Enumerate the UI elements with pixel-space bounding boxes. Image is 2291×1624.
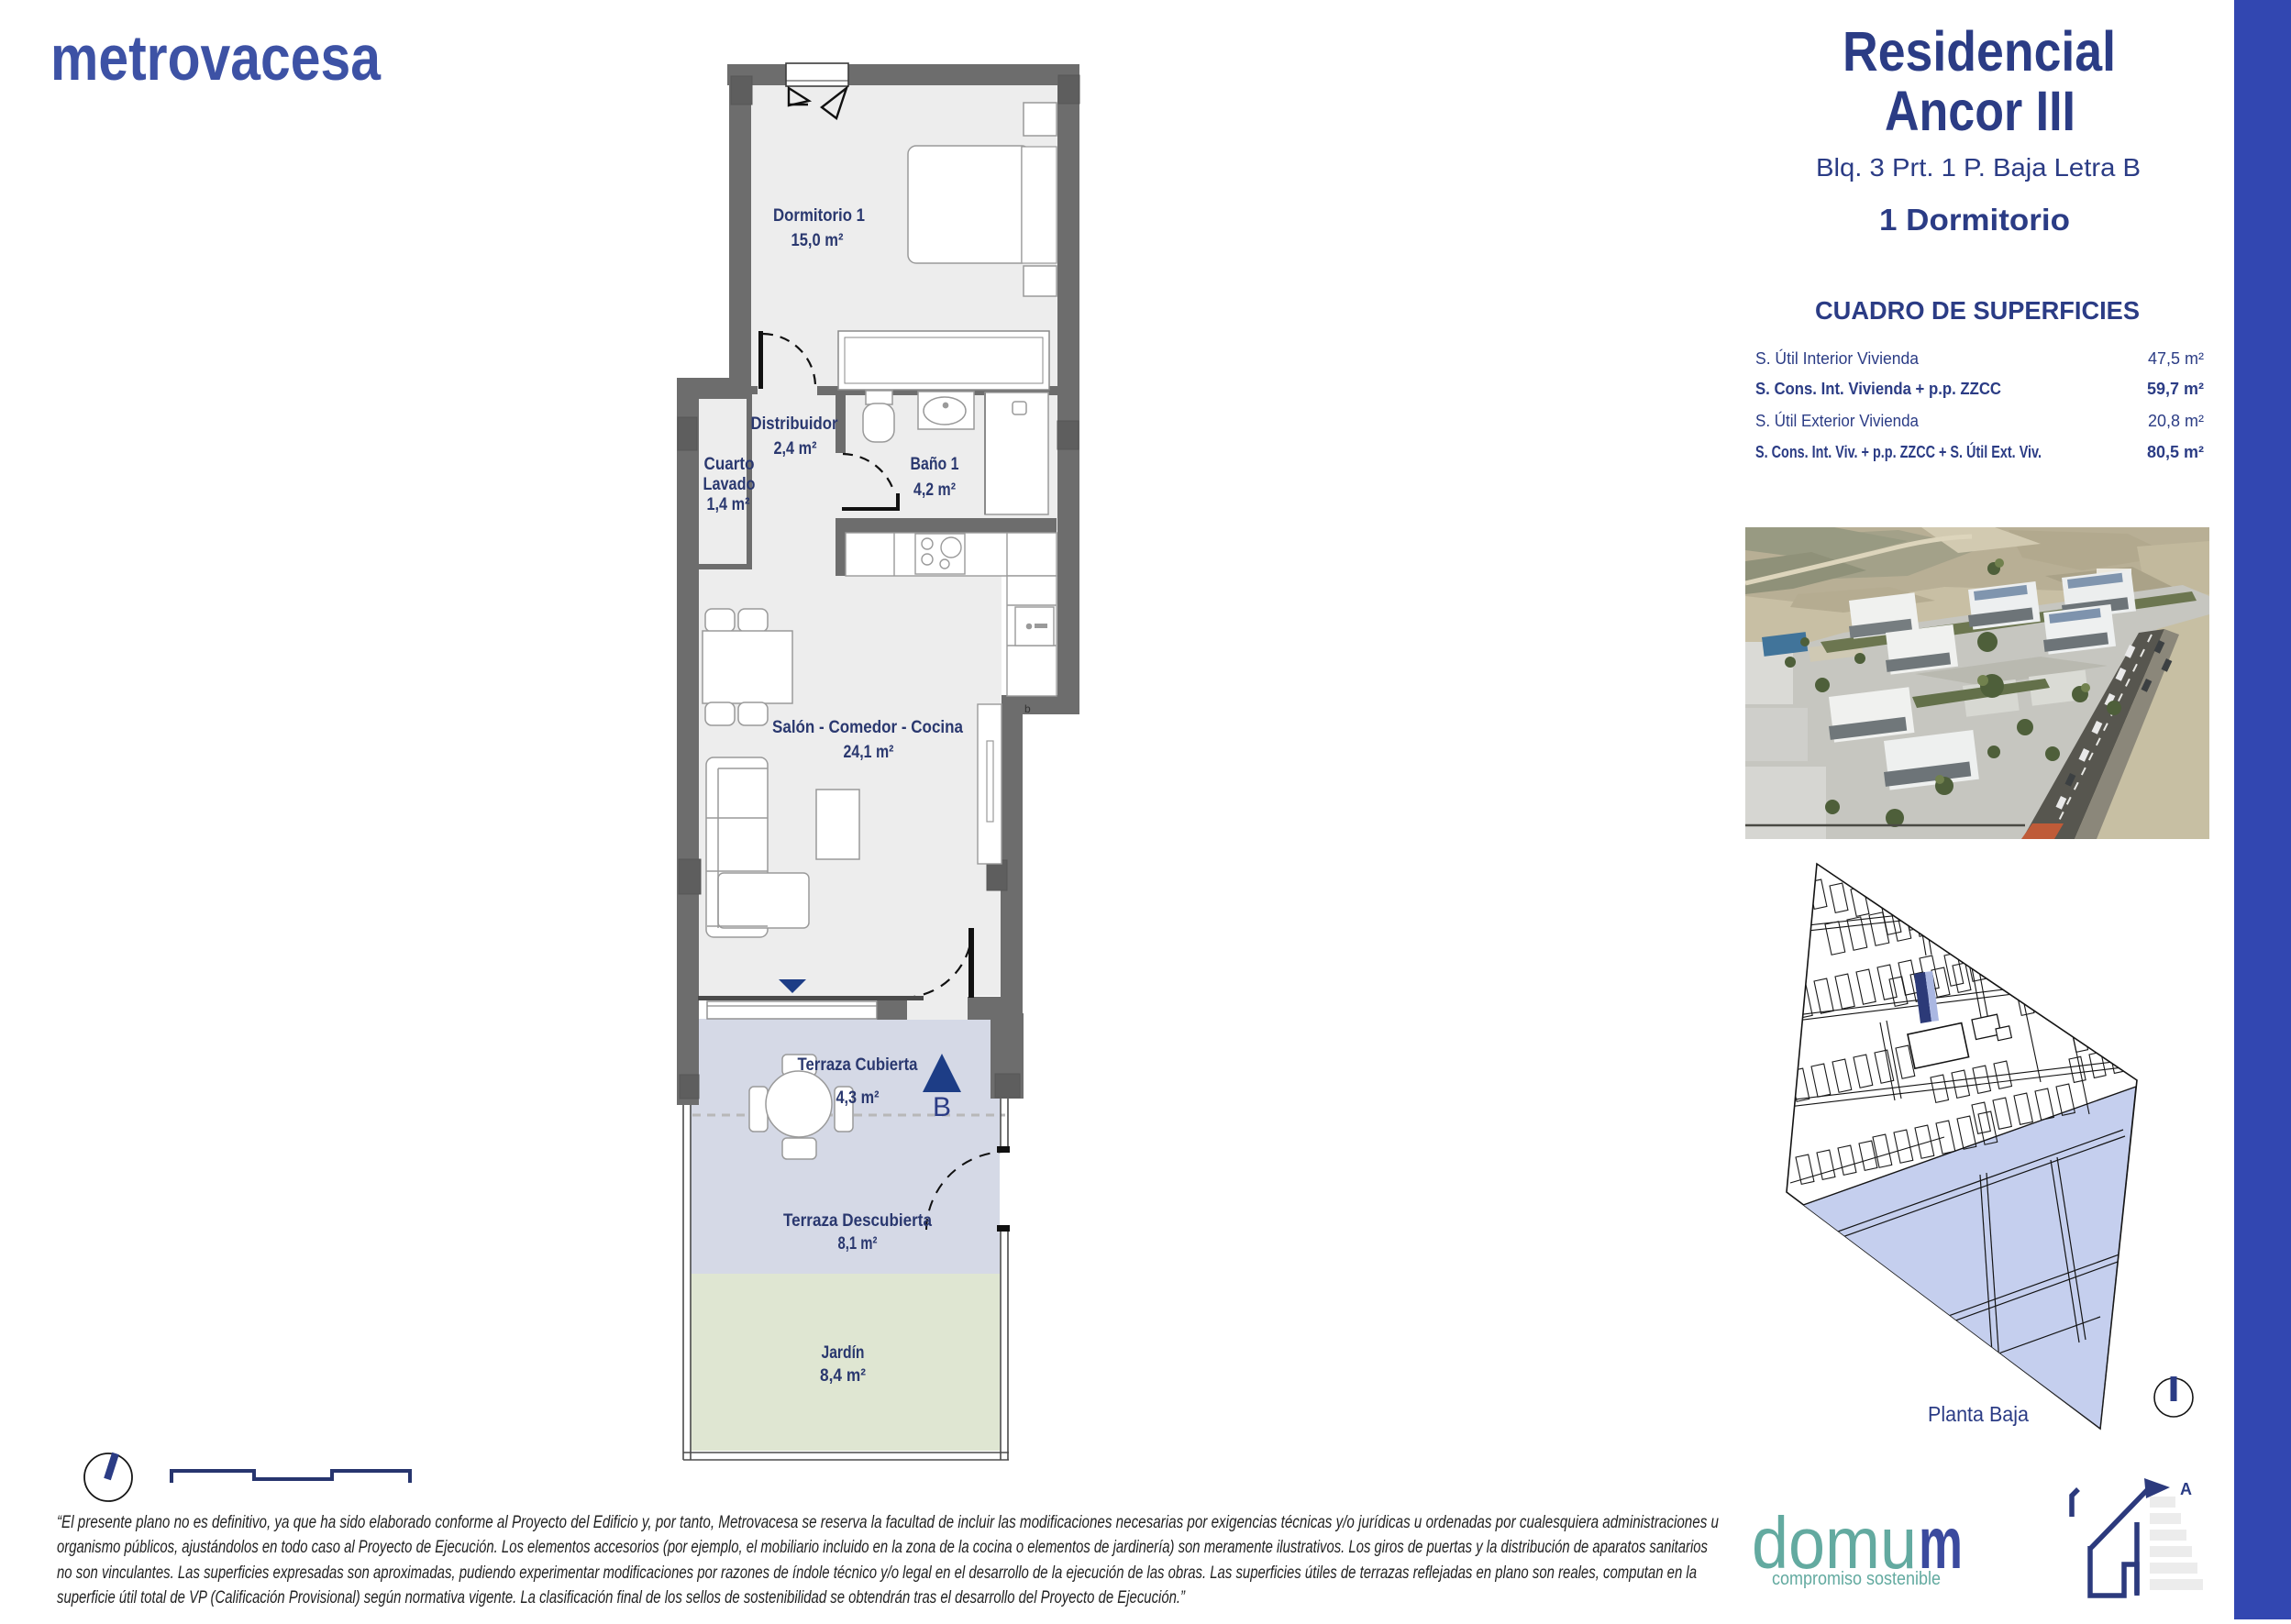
svg-text:15,0 m²: 15,0 m² bbox=[791, 231, 844, 250]
svg-text:Terraza Descubierta: Terraza Descubierta bbox=[783, 1211, 932, 1231]
svg-text:80,5 m²: 80,5 m² bbox=[2147, 443, 2204, 461]
svg-text:Blq. 3 Prt. 1 P. Baja Letra B: Blq. 3 Prt. 1 P. Baja Letra B bbox=[1816, 153, 2141, 182]
svg-text:Terraza Cubierta: Terraza Cubierta bbox=[798, 1055, 918, 1075]
svg-text:Baño 1: Baño 1 bbox=[911, 455, 959, 474]
svg-text:1 Dormitorio: 1 Dormitorio bbox=[1879, 203, 2070, 237]
svg-text:A: A bbox=[2180, 1480, 2192, 1498]
svg-text:8,4 m²: 8,4 m² bbox=[820, 1366, 866, 1386]
svg-text:47,5 m²: 47,5 m² bbox=[2148, 349, 2204, 368]
svg-text:4,2 m²: 4,2 m² bbox=[913, 481, 956, 500]
svg-text:metrovacesa: metrovacesa bbox=[50, 22, 382, 94]
svg-text:59,7 m²: 59,7 m² bbox=[2147, 380, 2204, 398]
svg-text:CUADRO DE SUPERFICIES: CUADRO DE SUPERFICIES bbox=[1815, 296, 2140, 325]
svg-text:S. Útil Interior Vivienda: S. Útil Interior Vivienda bbox=[1755, 348, 1920, 368]
svg-text:Dormitorio 1: Dormitorio 1 bbox=[773, 206, 865, 226]
svg-text:Residencial: Residencial bbox=[1843, 20, 2116, 83]
svg-text:20,8 m²: 20,8 m² bbox=[2148, 412, 2204, 430]
svg-text:1,4 m²: 1,4 m² bbox=[707, 495, 750, 514]
svg-text:24,1 m²: 24,1 m² bbox=[844, 743, 894, 762]
svg-text:S. Útil Exterior Vivienda: S. Útil Exterior Vivienda bbox=[1755, 411, 1920, 430]
svg-text:“El presente plano no es defin: “El presente plano no es definitivo, ya … bbox=[57, 1512, 1719, 1532]
svg-text:Distribuidor: Distribuidor bbox=[751, 414, 839, 434]
svg-text:superficie útil total de VP (C: superficie útil total de VP (Calificació… bbox=[57, 1587, 1186, 1607]
svg-text:b: b bbox=[1024, 702, 1031, 715]
svg-text:no son vinculantes. Las superf: no son vinculantes. Las superficies expr… bbox=[57, 1563, 1697, 1583]
svg-text:Jardín: Jardín bbox=[822, 1343, 865, 1363]
svg-text:Lavado: Lavado bbox=[703, 475, 756, 494]
svg-text:compromiso sostenible: compromiso sostenible bbox=[1772, 1569, 1941, 1589]
svg-text:Salón - Comedor - Cocina: Salón - Comedor - Cocina bbox=[772, 718, 963, 737]
svg-text:2,4 m²: 2,4 m² bbox=[774, 439, 817, 458]
svg-text:S. Cons. Int. Viv. + p.p. ZZCC: S. Cons. Int. Viv. + p.p. ZZCC + S. Útil… bbox=[1755, 442, 2042, 461]
svg-text:organismo públicos, ajustándol: organismo públicos, ajustándolos en todo… bbox=[57, 1537, 1708, 1557]
svg-text:B: B bbox=[933, 1092, 951, 1122]
svg-text:4,3 m²: 4,3 m² bbox=[836, 1088, 880, 1108]
svg-text:Planta Baja: Planta Baja bbox=[1928, 1402, 2029, 1426]
svg-text:S. Cons. Int. Vivienda + p.p.: S. Cons. Int. Vivienda + p.p. ZZCC bbox=[1755, 380, 2001, 398]
svg-text:8,1 m²: 8,1 m² bbox=[838, 1234, 878, 1254]
svg-text:Cuarto: Cuarto bbox=[704, 455, 755, 474]
svg-text:Ancor III: Ancor III bbox=[1885, 80, 2075, 142]
